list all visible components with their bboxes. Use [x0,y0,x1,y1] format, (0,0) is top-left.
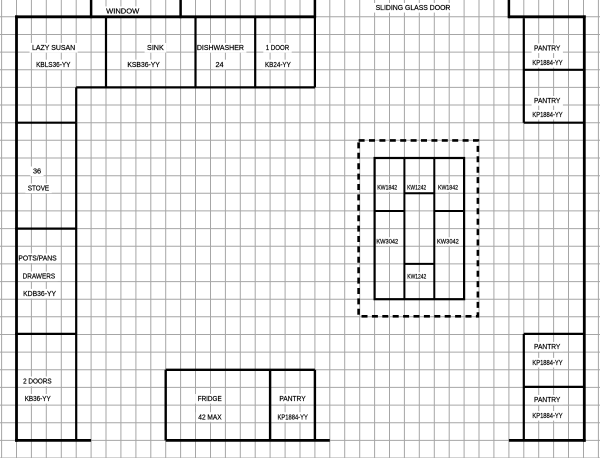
svg-text:KW1842: KW1842 [438,185,458,192]
svg-text:KW3042: KW3042 [437,239,459,246]
svg-text:KDB36-YY: KDB36-YY [23,289,56,298]
svg-text:WINDOW: WINDOW [106,9,139,16]
svg-text:STOVE: STOVE [28,184,49,193]
svg-text:KP1884-YY: KP1884-YY [532,110,562,119]
svg-text:FRIDGE: FRIDGE [198,394,222,403]
svg-text:PANTRY: PANTRY [534,342,560,351]
svg-text:KB24-YY: KB24-YY [265,60,291,69]
svg-text:PANTRY: PANTRY [534,96,560,105]
svg-text:KSB36-YY: KSB36-YY [127,60,160,69]
svg-text:KW1242: KW1242 [407,274,426,281]
svg-text:KB36-YY: KB36-YY [25,394,51,403]
svg-text:KP1884-YY: KP1884-YY [532,58,562,67]
svg-text:KW1242: KW1242 [407,185,426,192]
svg-text:2 DOORS: 2 DOORS [23,377,52,386]
svg-text:SINK: SINK [147,43,164,52]
svg-text:LAZY SUSAN: LAZY SUSAN [32,43,75,52]
svg-text:KW1842: KW1842 [377,185,397,192]
svg-text:24: 24 [215,60,223,69]
svg-text:POTS/PANS: POTS/PANS [18,254,56,263]
svg-text:DRAWERS: DRAWERS [23,272,56,281]
svg-text:KW3042: KW3042 [376,239,398,246]
svg-text:42 MAX: 42 MAX [198,412,222,421]
svg-text:DISHWASHER: DISHWASHER [197,43,244,52]
svg-text:PANTRY: PANTRY [534,44,560,53]
svg-text:KP1884-YY: KP1884-YY [532,411,562,420]
svg-text:1 DOOR: 1 DOOR [266,43,289,52]
svg-text:PANTRY: PANTRY [279,394,305,403]
svg-text:SLIDING GLASS DOOR: SLIDING GLASS DOOR [376,5,451,12]
svg-text:36: 36 [33,167,41,176]
svg-text:KBLS36-YY: KBLS36-YY [36,60,71,69]
svg-text:PANTRY: PANTRY [534,395,560,404]
svg-text:KP1884-YY: KP1884-YY [532,358,562,367]
svg-text:KP1884-YY: KP1884-YY [278,412,308,421]
